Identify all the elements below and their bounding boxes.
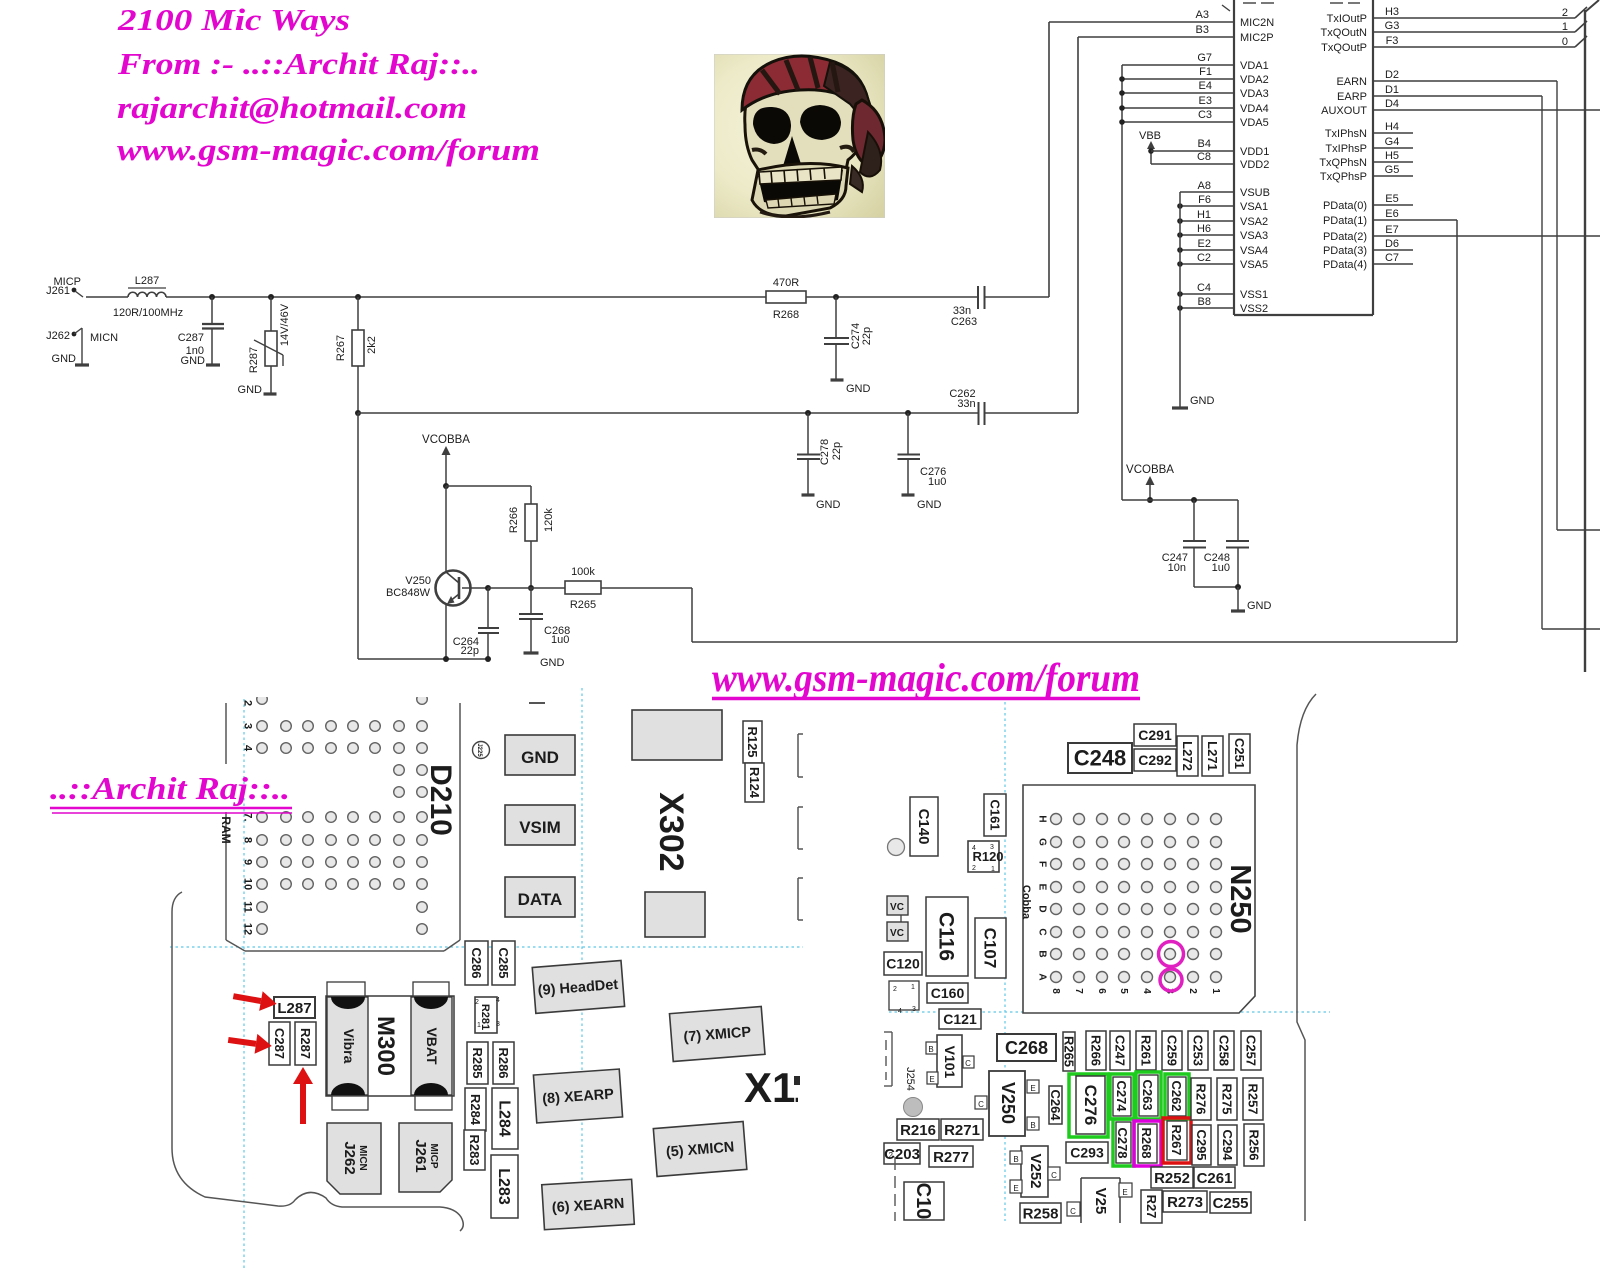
svg-text:C3: C3 (1198, 109, 1212, 121)
svg-text:J261: J261 (46, 285, 70, 297)
svg-text:C248: C248 (1074, 746, 1127, 771)
svg-text:GND: GND (816, 499, 841, 511)
svg-text:R261: R261 (1138, 1035, 1153, 1066)
svg-text:1: 1 (1562, 21, 1568, 33)
svg-text:GND: GND (521, 748, 559, 767)
svg-text:C160: C160 (931, 985, 965, 1001)
svg-text:GND: GND (540, 657, 565, 669)
svg-text:MIC2N: MIC2N (1240, 17, 1274, 29)
svg-text:R277: R277 (933, 1149, 969, 1166)
svg-text:GND: GND (846, 383, 871, 395)
svg-text:VDD1: VDD1 (1240, 146, 1269, 158)
svg-text:VBAT: VBAT (424, 1027, 440, 1065)
svg-text:C121: C121 (943, 1011, 977, 1027)
svg-text:C: C (978, 1100, 984, 1109)
svg-text:120k: 120k (543, 508, 555, 532)
svg-text:R275: R275 (1219, 1083, 1234, 1114)
svg-text:2k2: 2k2 (366, 336, 378, 354)
svg-text:22p: 22p (861, 327, 873, 345)
svg-text:C10: C10 (912, 1183, 934, 1220)
svg-text:EARP: EARP (1337, 91, 1367, 103)
svg-text:VCOBBA: VCOBBA (1126, 464, 1174, 476)
svg-text:5: 5 (1118, 988, 1129, 994)
svg-text:GND: GND (1247, 600, 1272, 612)
svg-text:C295: C295 (1194, 1129, 1209, 1160)
svg-text:22p: 22p (461, 645, 479, 657)
svg-text:E2: E2 (1198, 238, 1211, 250)
svg-text:1u0: 1u0 (928, 476, 946, 488)
svg-text:C261: C261 (1197, 1170, 1233, 1187)
svg-text:2: 2 (889, 1151, 894, 1160)
svg-text:E: E (1037, 884, 1048, 891)
svg-text:R258: R258 (1023, 1205, 1059, 1222)
svg-text:GND: GND (238, 384, 263, 396)
svg-text:DATA: DATA (518, 890, 563, 909)
svg-text:6: 6 (1096, 988, 1107, 994)
svg-text:11: 11 (242, 901, 254, 913)
svg-text:GND: GND (917, 499, 942, 511)
svg-text:100k: 100k (571, 566, 595, 578)
svg-text:R216: R216 (900, 1122, 936, 1139)
svg-text:TxQOutP: TxQOutP (1321, 42, 1367, 54)
svg-text:C120: C120 (886, 955, 920, 971)
svg-text:E: E (1122, 1188, 1127, 1197)
svg-text:C4: C4 (1197, 282, 1211, 294)
svg-text:R271: R271 (944, 1122, 980, 1139)
svg-text:4: 4 (972, 845, 976, 852)
svg-text:R283: R283 (467, 1134, 482, 1165)
svg-text:3: 3 (912, 1006, 916, 1013)
svg-text:C7: C7 (1385, 252, 1399, 264)
svg-text:L284: L284 (495, 1100, 512, 1137)
svg-text:C294: C294 (1220, 1129, 1235, 1161)
svg-text:H: H (1037, 815, 1048, 822)
svg-text:R268: R268 (773, 309, 799, 321)
svg-text:R267: R267 (1169, 1124, 1184, 1155)
svg-text:J261: J261 (412, 1139, 429, 1172)
svg-text:C287: C287 (272, 1028, 287, 1059)
svg-text:VDD2: VDD2 (1240, 159, 1269, 171)
svg-text:C2: C2 (1197, 252, 1211, 264)
svg-text:R286: R286 (496, 1047, 511, 1078)
svg-text:H1: H1 (1197, 209, 1211, 221)
svg-text:R273: R273 (1167, 1194, 1203, 1211)
svg-text:H4: H4 (1385, 121, 1399, 133)
svg-text:4: 4 (1141, 988, 1152, 994)
svg-text:BC848W: BC848W (386, 587, 431, 599)
svg-text:..::Archit Raj::..: ..::Archit Raj::.. (50, 770, 290, 806)
svg-text:GND: GND (52, 353, 77, 365)
svg-text:VDA2: VDA2 (1240, 74, 1269, 86)
svg-text:MICN: MICN (90, 332, 118, 344)
svg-text:R285: R285 (470, 1047, 485, 1078)
svg-text:R287: R287 (298, 1028, 313, 1059)
svg-text:C: C (1051, 1171, 1057, 1180)
svg-text:B: B (1013, 1155, 1018, 1164)
svg-text:C278: C278 (819, 439, 831, 465)
svg-text:R265: R265 (570, 599, 596, 611)
svg-text:120R/100MHz: 120R/100MHz (113, 307, 183, 319)
svg-text:2: 2 (893, 986, 897, 993)
svg-text:4: 4 (242, 745, 254, 752)
svg-text:R257: R257 (1245, 1083, 1260, 1114)
svg-text:C291: C291 (1138, 727, 1172, 743)
svg-text:C255: C255 (1213, 1195, 1249, 1212)
svg-text:2: 2 (972, 865, 976, 872)
svg-text:R267: R267 (335, 335, 347, 361)
svg-text:D1: D1 (1385, 84, 1399, 96)
svg-text:A3: A3 (1196, 9, 1209, 21)
svg-text:VSA2: VSA2 (1240, 216, 1268, 228)
svg-text:C140: C140 (915, 809, 932, 845)
svg-text:B: B (928, 1045, 933, 1054)
svg-text:C293: C293 (1070, 1144, 1104, 1160)
svg-text:TxQPhsN: TxQPhsN (1319, 157, 1367, 169)
svg-text:22p: 22p (831, 442, 843, 460)
svg-text:VDA5: VDA5 (1240, 117, 1269, 129)
svg-text:TxIPhsN: TxIPhsN (1325, 128, 1367, 140)
svg-text:C161: C161 (987, 799, 1002, 830)
svg-text:M300: M300 (372, 1016, 399, 1076)
svg-text:2: 2 (1187, 988, 1198, 994)
svg-text:VC: VC (890, 928, 904, 939)
svg-text:C: C (965, 1059, 971, 1068)
svg-text:www.gsm-magic.com/forum: www.gsm-magic.com/forum (712, 655, 1140, 700)
svg-text:10n: 10n (1168, 562, 1186, 574)
svg-text:Cobba: Cobba (1020, 885, 1032, 920)
svg-text:1: 1 (477, 1022, 481, 1029)
svg-text:MIC2P: MIC2P (1240, 32, 1274, 44)
svg-text:J262: J262 (46, 330, 70, 342)
svg-text:G5: G5 (1385, 164, 1400, 176)
svg-text:VBB: VBB (1139, 130, 1161, 142)
svg-text:C263: C263 (951, 316, 977, 328)
svg-text:14V/46V: 14V/46V (279, 303, 291, 346)
svg-text:L287: L287 (135, 275, 159, 287)
svg-text:R284: R284 (468, 1094, 483, 1126)
svg-text:VSS1: VSS1 (1240, 289, 1268, 301)
svg-text:C257: C257 (1243, 1035, 1258, 1066)
svg-text:VSA5: VSA5 (1240, 259, 1268, 271)
svg-text:2: 2 (475, 999, 479, 1006)
svg-text:V252: V252 (1027, 1153, 1044, 1188)
svg-text:R27: R27 (1144, 1195, 1159, 1219)
svg-text:E4: E4 (1199, 80, 1212, 92)
svg-text:3: 3 (242, 723, 254, 729)
svg-text:V101: V101 (942, 1046, 958, 1079)
svg-text:E3: E3 (1199, 95, 1212, 107)
svg-text:4: 4 (496, 997, 500, 1004)
svg-text:B8: B8 (1198, 296, 1211, 308)
svg-text:TxIPhsP: TxIPhsP (1325, 143, 1367, 155)
svg-text:VSA1: VSA1 (1240, 201, 1268, 213)
svg-text:GND: GND (1190, 395, 1215, 407)
svg-text:GND: GND (181, 355, 206, 367)
svg-text:VC: VC (890, 902, 904, 913)
svg-text:V250: V250 (998, 1082, 1018, 1124)
svg-text:9: 9 (242, 859, 254, 865)
svg-text:VDA4: VDA4 (1240, 103, 1269, 115)
svg-text:C268: C268 (1005, 1038, 1048, 1058)
svg-text:2: 2 (1562, 7, 1568, 19)
svg-text:1u0: 1u0 (1212, 562, 1230, 574)
svg-text:12: 12 (242, 923, 254, 935)
svg-text:8: 8 (242, 837, 254, 843)
svg-text:G3: G3 (1385, 20, 1400, 32)
svg-text:F1: F1 (1199, 66, 1212, 78)
svg-text:C116: C116 (935, 912, 958, 961)
svg-text:C262: C262 (1169, 1080, 1184, 1111)
svg-text:R287: R287 (248, 347, 260, 373)
svg-text:1: 1 (1210, 988, 1221, 994)
svg-text:PData(2): PData(2) (1323, 231, 1367, 243)
svg-text:E: E (1013, 1184, 1018, 1193)
svg-text:VDA1: VDA1 (1240, 60, 1269, 72)
svg-text:4: 4 (898, 1008, 902, 1015)
svg-text:X302: X302 (652, 792, 690, 871)
svg-text:C263: C263 (1140, 1079, 1155, 1110)
svg-text:V250: V250 (405, 575, 431, 587)
svg-text:VSA3: VSA3 (1240, 230, 1268, 242)
svg-text:TxIOutP: TxIOutP (1327, 13, 1367, 25)
svg-text:D6: D6 (1385, 238, 1399, 250)
svg-text:L287: L287 (277, 1000, 311, 1017)
svg-text:R124: R124 (747, 767, 762, 799)
svg-text:PData(0): PData(0) (1323, 200, 1367, 212)
svg-text:F6: F6 (1198, 194, 1211, 206)
svg-text:E5: E5 (1385, 193, 1398, 205)
svg-text:N250: N250 (1224, 864, 1256, 933)
svg-text:7: 7 (1073, 988, 1084, 994)
svg-text:L272: L272 (1180, 741, 1195, 771)
svg-text:C276: C276 (1081, 1085, 1100, 1126)
svg-text:B4: B4 (1198, 138, 1211, 150)
svg-text:Vibra: Vibra (341, 1029, 357, 1064)
svg-text:RAM: RAM (219, 816, 233, 843)
svg-text:470R: 470R (773, 277, 799, 289)
svg-text:www.gsm-magic.com/forum: www.gsm-magic.com/forum (117, 132, 540, 167)
svg-text:J225: J225 (476, 743, 482, 757)
svg-text:D: D (1037, 905, 1048, 912)
svg-text:1u0: 1u0 (551, 634, 569, 646)
svg-text:VSS2: VSS2 (1240, 303, 1268, 315)
svg-text:C264: C264 (1048, 1089, 1063, 1121)
svg-text:C287: C287 (178, 332, 204, 344)
svg-text:L283: L283 (495, 1168, 512, 1205)
svg-text:3: 3 (496, 1021, 500, 1028)
svg-text:E7: E7 (1385, 224, 1398, 236)
svg-text:PData(1): PData(1) (1323, 215, 1367, 227)
svg-text:B3: B3 (1196, 24, 1209, 36)
svg-text:C247: C247 (1112, 1035, 1127, 1066)
svg-text:R266: R266 (1088, 1035, 1103, 1066)
svg-text:E: E (1030, 1084, 1035, 1093)
svg-text:H3: H3 (1385, 6, 1399, 18)
svg-text:C8: C8 (1197, 151, 1211, 163)
svg-text:R120: R120 (972, 849, 1003, 864)
svg-text:E6: E6 (1385, 208, 1398, 220)
svg-text:R125: R125 (745, 726, 760, 757)
svg-text:PData(3): PData(3) (1323, 245, 1367, 257)
svg-text:TxQOutN: TxQOutN (1321, 27, 1368, 39)
svg-text:A: A (1037, 973, 1048, 980)
svg-text:D210: D210 (424, 764, 457, 836)
svg-text:R276: R276 (1193, 1083, 1208, 1114)
svg-text:EARN: EARN (1336, 76, 1367, 88)
svg-text:AUXOUT: AUXOUT (1321, 105, 1367, 117)
svg-text:H5: H5 (1385, 150, 1399, 162)
svg-text:L271: L271 (1205, 741, 1220, 771)
svg-text:C292: C292 (1138, 752, 1172, 768)
svg-text:R268: R268 (1139, 1127, 1154, 1158)
svg-text:rajarchit@hotmail.com: rajarchit@hotmail.com (117, 90, 467, 125)
svg-text:B: B (1037, 950, 1048, 957)
svg-text:D4: D4 (1385, 98, 1399, 110)
svg-text:0: 0 (1562, 36, 1568, 48)
svg-text:C: C (1070, 1207, 1076, 1216)
svg-text:MICN: MICN (357, 1145, 368, 1171)
svg-text:MICP: MICP (428, 1144, 439, 1169)
svg-text:1: 1 (991, 866, 995, 873)
svg-text:A8: A8 (1198, 180, 1211, 192)
svg-text:33n: 33n (957, 398, 975, 410)
svg-text:VDA3: VDA3 (1240, 88, 1269, 100)
svg-text:J262: J262 (341, 1141, 358, 1174)
svg-text:C274: C274 (1114, 1080, 1129, 1112)
svg-text:VCOBBA: VCOBBA (422, 434, 470, 446)
svg-text:J254: J254 (904, 1067, 916, 1091)
svg-text:C286: C286 (469, 947, 484, 978)
svg-text:C258: C258 (1216, 1035, 1231, 1066)
svg-text:G4: G4 (1385, 136, 1400, 148)
svg-text:From :- ..::Archit Raj::..: From :- ..::Archit Raj::.. (117, 46, 480, 81)
svg-text:E: E (929, 1075, 934, 1084)
svg-text:8: 8 (1050, 988, 1061, 994)
svg-text:3: 3 (990, 844, 994, 851)
svg-text:H6: H6 (1197, 223, 1211, 235)
svg-text:C: C (1037, 928, 1048, 935)
svg-text:B: B (1030, 1121, 1035, 1130)
svg-text:F: F (1037, 861, 1048, 867)
svg-text:V25: V25 (1092, 1188, 1109, 1215)
svg-text:1: 1 (911, 984, 915, 991)
svg-text:10: 10 (242, 878, 254, 890)
svg-text:C107: C107 (981, 928, 1000, 969)
svg-text:PData(4): PData(4) (1323, 259, 1367, 271)
svg-text:G: G (1037, 838, 1048, 846)
svg-text:C251: C251 (1232, 738, 1247, 769)
svg-text:C259: C259 (1164, 1035, 1179, 1066)
svg-text:R252: R252 (1154, 1170, 1190, 1187)
svg-text:C253: C253 (1190, 1035, 1205, 1066)
svg-text:R266: R266 (508, 507, 520, 533)
svg-text:F3: F3 (1386, 35, 1399, 47)
svg-text:2100 Mic Ways: 2100 Mic Ways (117, 2, 350, 37)
svg-text:VSUB: VSUB (1240, 187, 1270, 199)
svg-text:R265: R265 (1061, 1036, 1076, 1067)
svg-text:TxQPhsP: TxQPhsP (1320, 171, 1367, 183)
svg-text:R256: R256 (1246, 1129, 1261, 1160)
svg-text:D2: D2 (1385, 69, 1399, 81)
svg-text:VSA4: VSA4 (1240, 245, 1268, 257)
svg-text:C278: C278 (1115, 1127, 1130, 1158)
svg-text:C285: C285 (496, 947, 511, 978)
svg-text:VSIM: VSIM (519, 818, 561, 837)
svg-text:G7: G7 (1197, 52, 1212, 64)
svg-text:2: 2 (242, 700, 254, 706)
